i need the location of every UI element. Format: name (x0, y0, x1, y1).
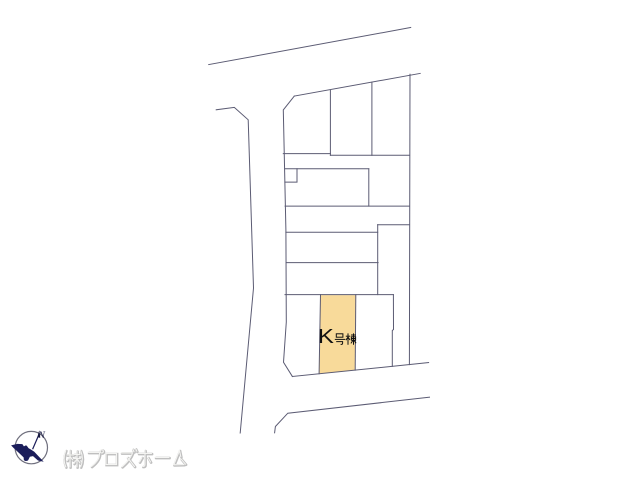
svg-text:N: N (37, 430, 45, 441)
svg-text:K: K (318, 325, 334, 348)
